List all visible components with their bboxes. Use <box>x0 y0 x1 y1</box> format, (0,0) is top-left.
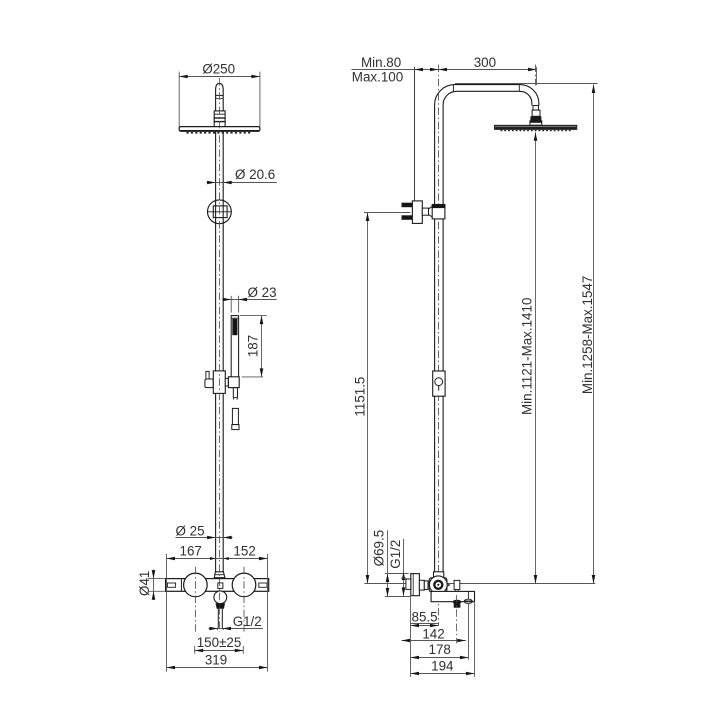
svg-text:178: 178 <box>429 642 451 657</box>
svg-text:Ø41: Ø41 <box>137 571 152 596</box>
svg-text:Min.1121-Max.1410: Min.1121-Max.1410 <box>520 298 535 415</box>
svg-text:Ø 20.6: Ø 20.6 <box>235 167 275 182</box>
svg-text:194: 194 <box>431 659 454 674</box>
svg-text:Ø 23: Ø 23 <box>248 285 277 300</box>
svg-text:Ø250: Ø250 <box>202 62 235 77</box>
svg-text:G1/2: G1/2 <box>233 614 262 629</box>
svg-text:Max.100: Max.100 <box>352 69 403 84</box>
svg-text:150±25: 150±25 <box>197 635 242 650</box>
svg-text:319: 319 <box>205 652 227 667</box>
svg-text:Min.80: Min.80 <box>361 55 401 70</box>
svg-text:142: 142 <box>422 626 444 641</box>
svg-text:Ø69.5: Ø69.5 <box>371 530 386 566</box>
svg-text:1151.5: 1151.5 <box>352 377 367 417</box>
svg-text:Min.1258-Max.1547: Min.1258-Max.1547 <box>580 276 595 394</box>
svg-text:187: 187 <box>245 335 260 357</box>
svg-text:G1/2: G1/2 <box>388 540 403 569</box>
svg-text:152: 152 <box>233 543 255 558</box>
svg-text:85.5: 85.5 <box>412 610 438 625</box>
svg-text:Ø 25: Ø 25 <box>176 524 205 539</box>
svg-text:300: 300 <box>474 55 496 70</box>
svg-text:167: 167 <box>180 543 202 558</box>
